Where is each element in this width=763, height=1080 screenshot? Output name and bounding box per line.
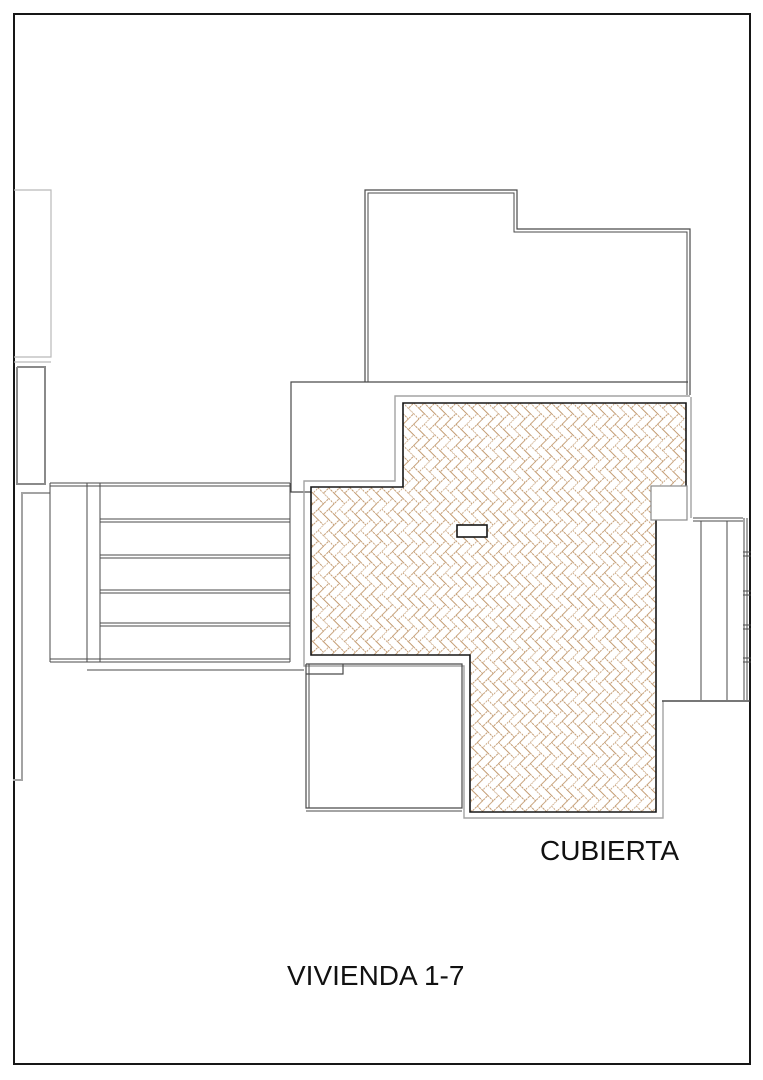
patio-outline bbox=[306, 664, 462, 808]
upper-building-outline-outer bbox=[365, 190, 690, 395]
drawing-sheet: CUBIERTA VIVIENDA 1-7 bbox=[0, 0, 763, 1080]
unit-label: VIVIENDA 1-7 bbox=[287, 960, 464, 991]
floor-plan-canvas: CUBIERTA VIVIENDA 1-7 bbox=[0, 0, 763, 1080]
roof-vent-slot bbox=[457, 525, 487, 537]
left-annex-lower-outline bbox=[17, 367, 45, 484]
upper-building-outline-inner bbox=[368, 193, 687, 395]
roof-label: CUBIERTA bbox=[540, 835, 679, 866]
roof-hatch bbox=[311, 403, 686, 812]
chimney-box bbox=[651, 486, 687, 520]
left-annex-upper-outline bbox=[14, 190, 51, 357]
handrail-line bbox=[22, 493, 50, 780]
